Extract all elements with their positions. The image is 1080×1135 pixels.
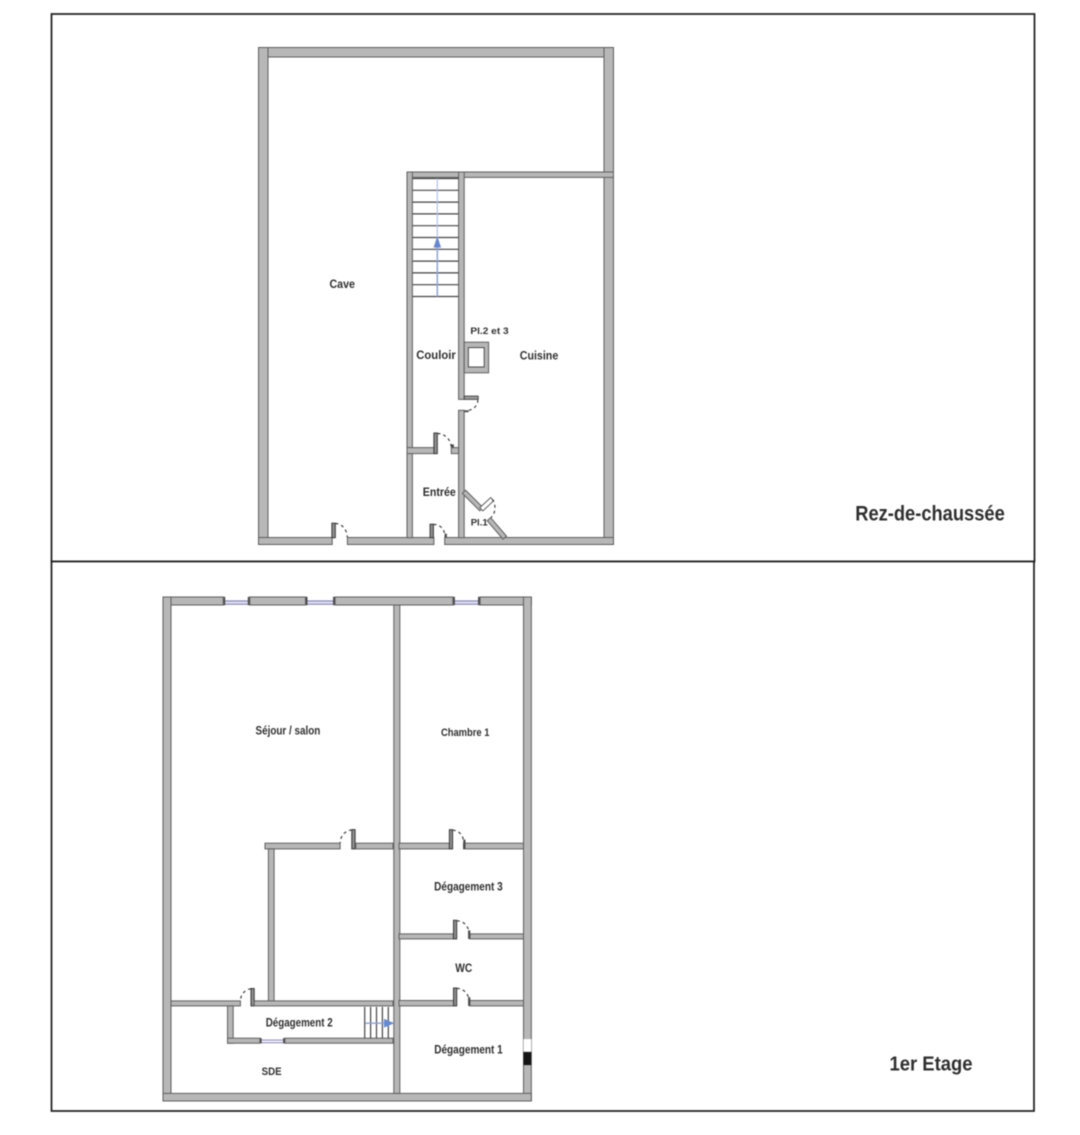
svg-text:1er Etage: 1er Etage [890, 1053, 973, 1076]
svg-text:Rez-de-chaussée: Rez-de-chaussée [855, 502, 1005, 526]
svg-text:SDE: SDE [262, 1066, 282, 1078]
svg-text:Couloir: Couloir [416, 348, 456, 362]
svg-text:Pl.2 et 3: Pl.2 et 3 [470, 326, 508, 337]
svg-text:Pl.1: Pl.1 [471, 518, 489, 529]
svg-text:Séjour / salon: Séjour / salon [256, 725, 321, 737]
svg-text:Chambre 1: Chambre 1 [441, 727, 490, 739]
svg-text:Dégagement 3: Dégagement 3 [434, 881, 503, 893]
svg-text:Dégagement 1: Dégagement 1 [434, 1044, 503, 1056]
svg-text:Entrée: Entrée [423, 486, 456, 499]
svg-text:Dégagement 2: Dégagement 2 [266, 1018, 333, 1030]
svg-text:WC: WC [455, 961, 472, 975]
svg-text:Cuisine: Cuisine [520, 349, 559, 363]
svg-text:Cave: Cave [329, 277, 355, 291]
